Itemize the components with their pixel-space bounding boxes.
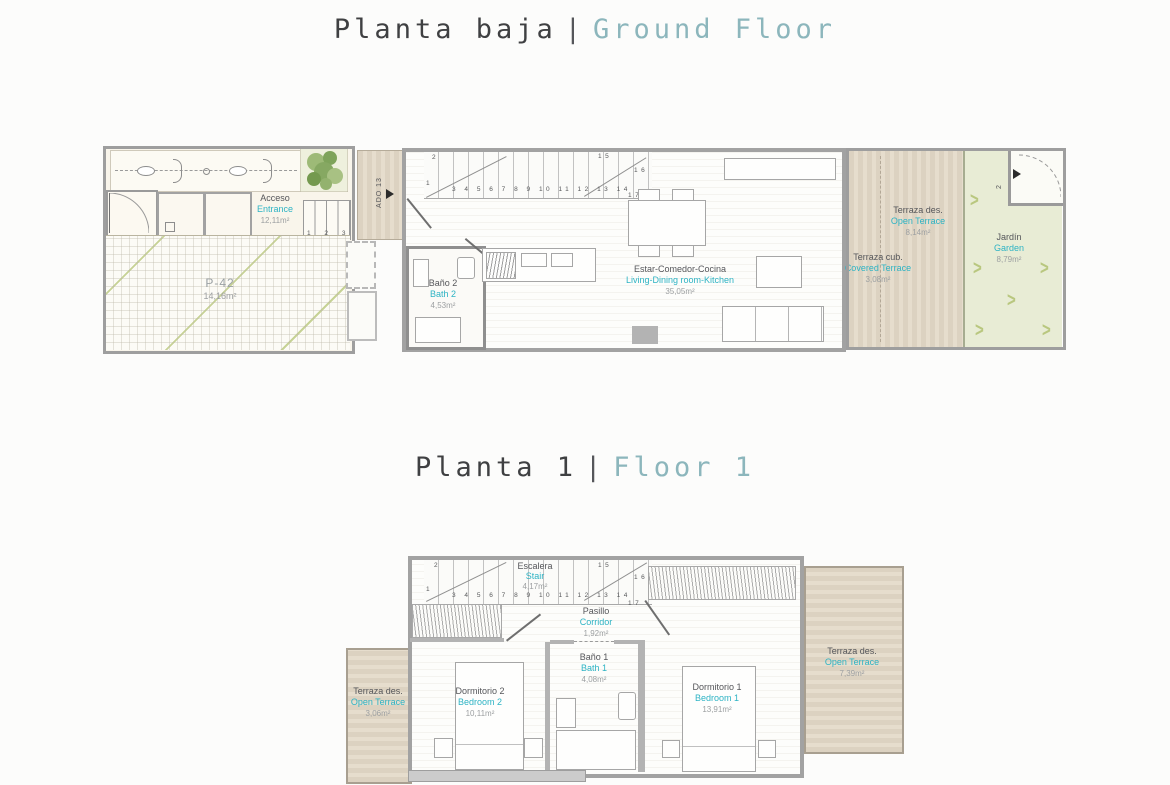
porch-solid: [347, 291, 377, 341]
sink: [413, 259, 429, 287]
terrace-right-area: [804, 566, 904, 754]
ground-floor-title: Planta baja|Ground Floor: [0, 14, 1170, 45]
cooktop: [551, 253, 573, 267]
sink: [556, 698, 576, 728]
wall: [550, 640, 574, 644]
sofa: [722, 306, 824, 342]
bed: [455, 662, 524, 770]
f1-stair-number-row: 3 4 5 6 7 8 9 10 11 12 13 14: [452, 592, 631, 599]
side-passage: ADO 13: [357, 150, 405, 240]
entry-arrow-icon: [386, 189, 394, 199]
bath1-door-line: [574, 641, 614, 642]
bed-fold-line: [456, 744, 523, 745]
dishwasher: [486, 252, 516, 279]
f1-stair-number-17: 17: [628, 600, 642, 607]
floor1-title-en: Floor 1: [613, 452, 755, 483]
nightstand: [662, 740, 680, 758]
shower: [415, 317, 461, 343]
bottom-wall-band: [408, 770, 586, 782]
floorplan-page: Planta baja|Ground Floor: [0, 0, 1170, 785]
front-yard-wall: [103, 146, 355, 354]
porch-dashed: [346, 241, 376, 289]
terrace-left-area: [346, 648, 412, 784]
shower: [556, 730, 636, 770]
wall: [638, 640, 645, 772]
kitchen-counter: [482, 248, 596, 282]
f1-stair-number-15: 15: [598, 562, 612, 569]
wall: [614, 640, 638, 644]
kitchen-sink: [521, 253, 547, 267]
ground-title-en: Ground Floor: [593, 14, 836, 45]
dining-table: [628, 200, 706, 246]
wall-notch: [632, 326, 658, 344]
nightstand: [434, 738, 453, 758]
wall: [410, 638, 504, 642]
stair-number-16: 16: [634, 167, 648, 174]
kitchen-wall-counter: [724, 158, 836, 180]
f1-stair-number-1: 1: [426, 586, 433, 593]
nightstand: [524, 738, 543, 758]
stair-number-2: 2: [432, 154, 439, 161]
floor1-title-es: Planta 1: [415, 452, 577, 483]
bath2-room: [406, 246, 486, 350]
floor1-title-separator: |: [585, 452, 605, 483]
wardrobe: [648, 566, 796, 600]
wardrobe: [412, 604, 502, 638]
stair-number-1: 1: [426, 180, 433, 187]
bed: [682, 666, 756, 772]
stair-number-15: 15: [598, 153, 612, 160]
side-table: [756, 256, 802, 288]
f1-stair-number-16: 16: [634, 574, 648, 581]
bed-fold-line: [683, 746, 755, 747]
chair: [638, 189, 660, 201]
stair-number-row: 3 4 5 6 7 8 9 10 11 12 13 14: [452, 186, 631, 193]
toilet: [618, 692, 636, 720]
floor1-title: Planta 1|Floor 1: [0, 452, 1170, 483]
chair: [638, 245, 660, 257]
chair: [672, 189, 694, 201]
garden-outer-wall: [846, 148, 1066, 350]
chair: [672, 245, 694, 257]
ground-title-es: Planta baja: [334, 14, 557, 45]
nightstand: [758, 740, 776, 758]
toilet: [457, 257, 475, 279]
side-passage-label: ADO 13: [376, 177, 383, 208]
wall: [545, 642, 550, 772]
f1-stair-number-2: 2: [434, 562, 441, 569]
ground-title-separator: |: [565, 14, 585, 45]
